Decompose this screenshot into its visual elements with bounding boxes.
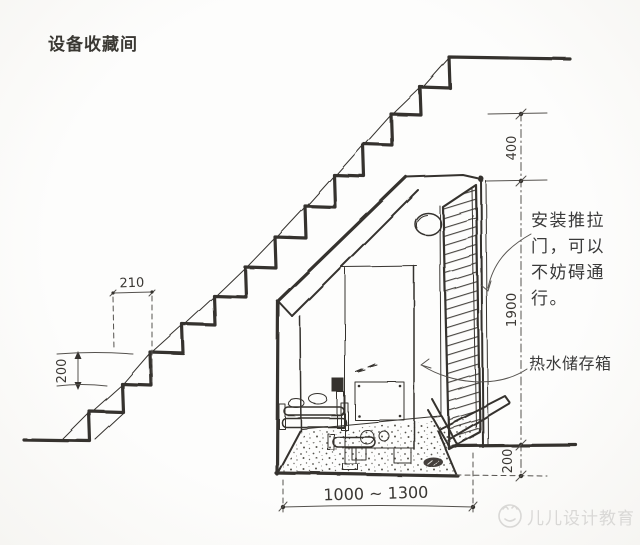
- sketch-page: 210 200 400 1900 200 1000 ~ 1300: [0, 0, 640, 545]
- tank-label-text: 热水储存箱: [529, 355, 612, 373]
- door-note-callout: [481, 234, 531, 291]
- door-note-line-2: 门，可以: [531, 237, 605, 256]
- dim-base-height-label: 200: [501, 449, 516, 474]
- slope-board-inner-edge: [292, 190, 418, 316]
- door-note-line-3: 不妨碍通: [531, 263, 605, 282]
- watermark-logo: [499, 505, 521, 527]
- door-note-text: 安装推拉 门，可以 不妨碍通 行。: [531, 211, 605, 308]
- dim-closet-height-label: 1900: [504, 293, 520, 327]
- dim-riser-height-label: 200: [55, 359, 70, 384]
- floor-drain: [423, 457, 443, 467]
- watermark-text: 儿儿设计教育: [527, 509, 635, 528]
- tank-access-panel: [355, 382, 404, 420]
- left-wall-front-edge: [277, 301, 278, 474]
- under-stair-storage-diagram: 210 200 400 1900 200 1000 ~ 1300: [0, 0, 640, 545]
- valve-body: [332, 378, 344, 392]
- ground-line: [454, 445, 576, 446]
- watermark: 儿儿设计教育: [499, 505, 635, 528]
- dim-tread-depth: 210: [110, 276, 155, 382]
- left-wall-inner-corner: [300, 316, 301, 431]
- dim-tread-depth-label: 210: [119, 276, 144, 292]
- door-note-line-1: 安装推拉: [531, 211, 605, 230]
- dim-top-rise-label: 400: [505, 136, 520, 161]
- closet-top-edge: [406, 175, 481, 179]
- door-note-line-4: 行。: [531, 289, 568, 308]
- stair-profile: [24, 57, 570, 441]
- page-title: 设备收藏间: [48, 34, 138, 54]
- back-wall-right-corner: [440, 206, 441, 414]
- vent-hole: [415, 213, 441, 235]
- dim-closet-width-label: 1000 ~ 1300: [323, 483, 428, 505]
- tank-marking: [356, 364, 377, 372]
